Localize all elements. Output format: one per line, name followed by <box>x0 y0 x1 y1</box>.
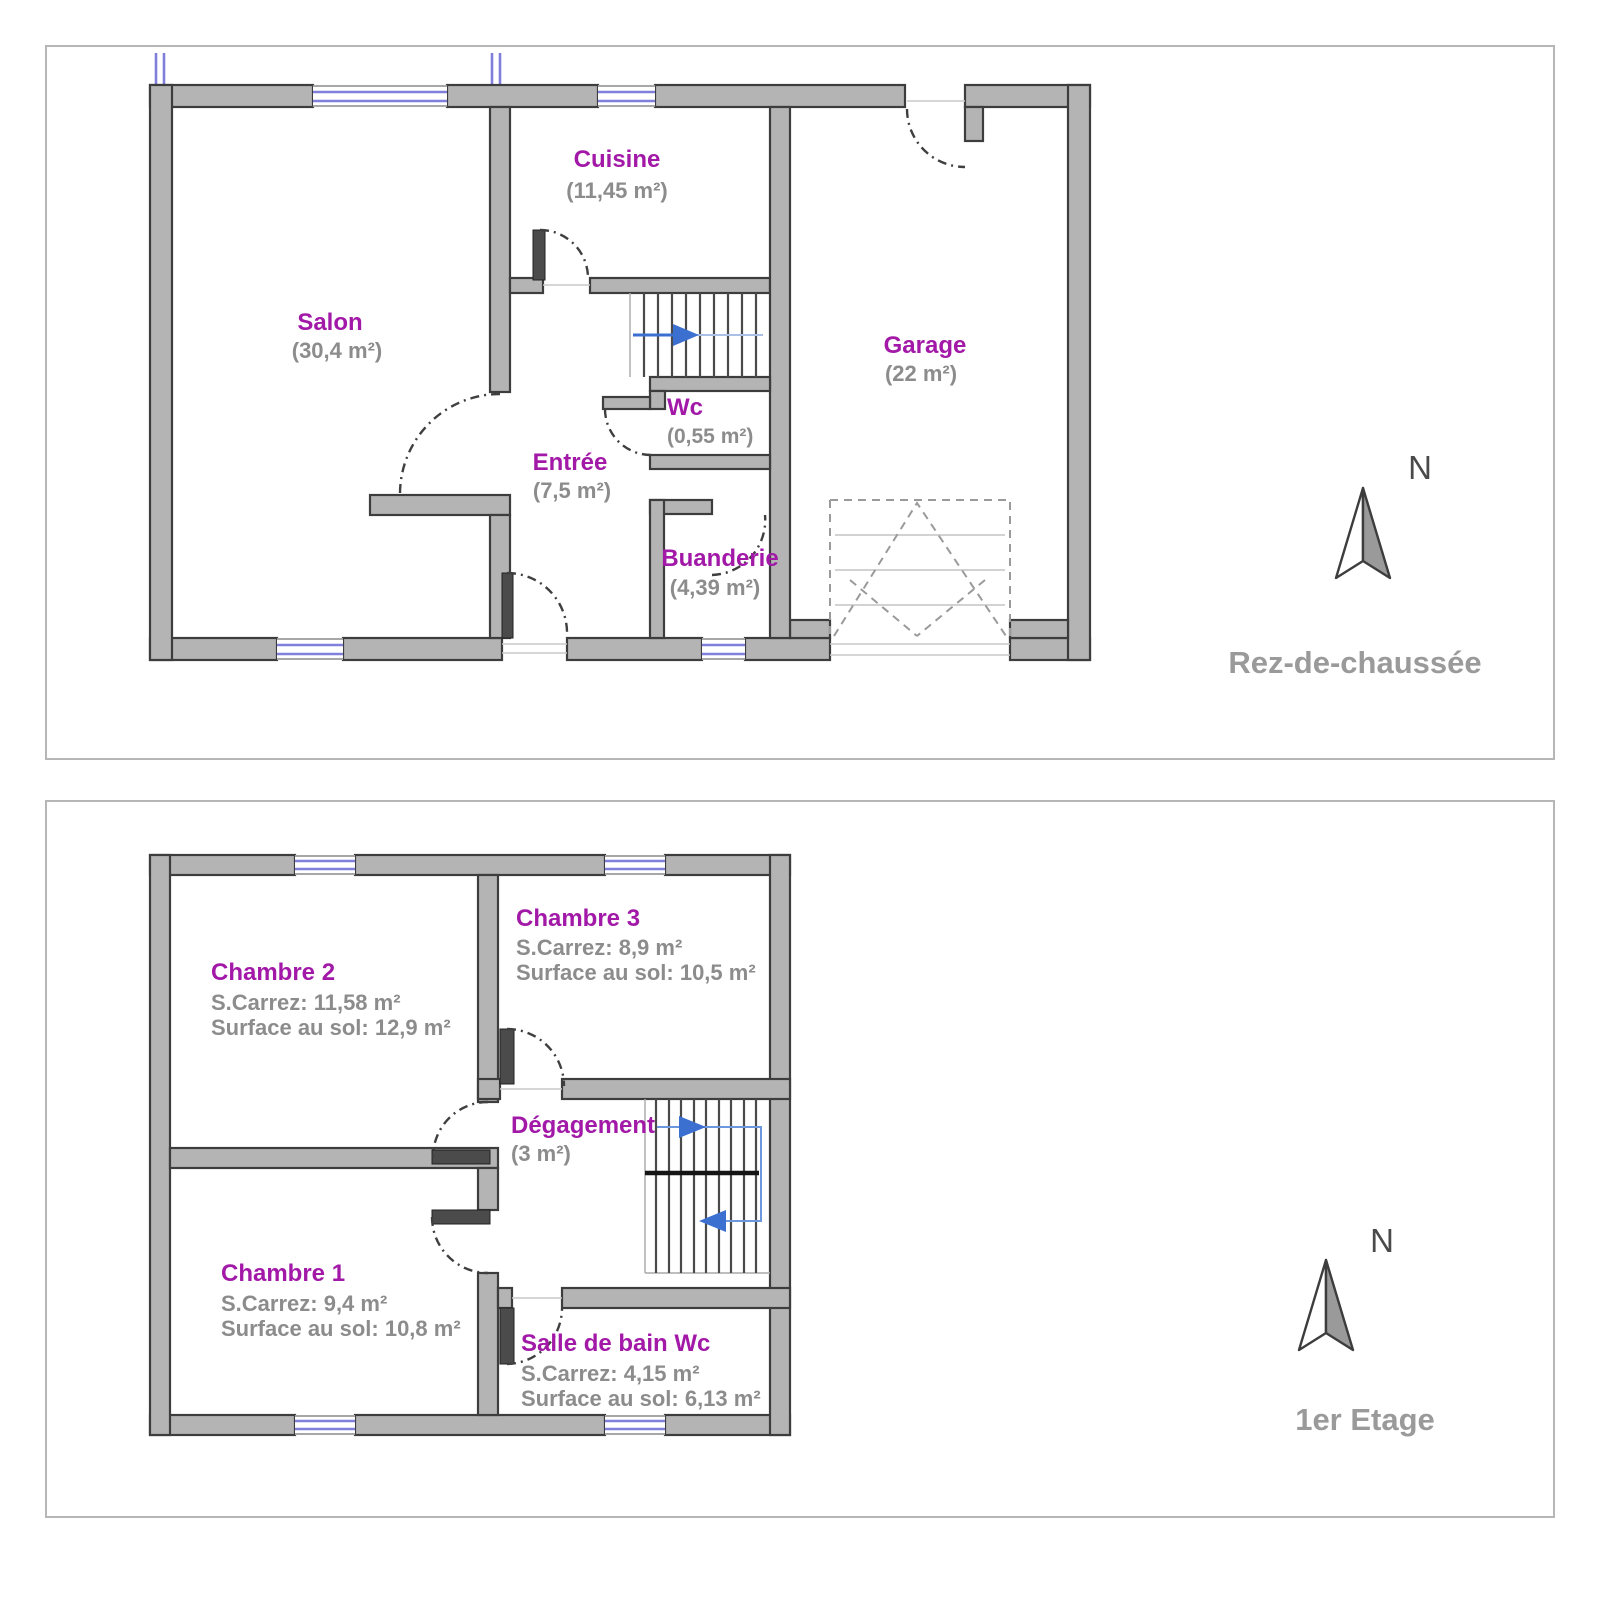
room-area-wc: (0,55 m²) <box>667 425 753 448</box>
window <box>605 855 665 875</box>
room-name-chambre2: Chambre 2 <box>211 959 335 986</box>
door-leaf <box>432 1210 490 1224</box>
room-name-sdb: Salle de bain Wc <box>521 1330 710 1357</box>
room-name-buanderie: Buanderie <box>661 545 778 572</box>
room-name-chambre1: Chambre 1 <box>221 1260 345 1287</box>
north-label: N <box>1408 449 1432 486</box>
room-sol-chambre3: Surface au sol: 10,5 m² <box>516 960 756 985</box>
room-name-garage: Garage <box>884 332 967 359</box>
room-carrez-chambre2: S.Carrez: 11,58 m² <box>211 990 401 1015</box>
window <box>295 855 355 875</box>
door-leaf <box>533 230 545 280</box>
room-name-wc: Wc <box>667 394 703 421</box>
room-name-salon: Salon <box>297 309 362 336</box>
ground-floor-plan: Cuisine (11,45 m²) Salon (30,4 m²) Garag… <box>45 45 1555 760</box>
window <box>598 85 655 107</box>
room-area-cuisine: (11,45 m²) <box>566 178 668 203</box>
window <box>702 638 745 660</box>
first-floor-plan: Chambre 2 S.Carrez: 11,58 m² Surface au … <box>45 800 1555 1518</box>
window <box>277 638 343 660</box>
room-area-degagement: (3 m²) <box>511 1141 571 1166</box>
north-label: N <box>1370 1222 1394 1259</box>
room-area-entree: (7,5 m²) <box>533 478 611 503</box>
door-leaf <box>502 573 513 638</box>
room-area-buanderie: (4,39 m²) <box>670 575 760 600</box>
room-area-salon: (30,4 m²) <box>292 338 382 363</box>
room-name-chambre3: Chambre 3 <box>516 905 640 932</box>
window <box>295 1415 355 1435</box>
floorplan-sheet: Cuisine (11,45 m²) Salon (30,4 m²) Garag… <box>0 0 1600 1600</box>
door-leaf <box>500 1308 514 1364</box>
room-sol-chambre2: Surface au sol: 12,9 m² <box>211 1015 451 1040</box>
room-sol-chambre1: Surface au sol: 10,8 m² <box>221 1316 461 1341</box>
room-area-garage: (22 m²) <box>885 361 957 386</box>
door-leaf <box>432 1150 490 1164</box>
door-leaf <box>500 1029 514 1084</box>
floor-caption: Rez-de-chaussée <box>1228 645 1481 680</box>
room-carrez-chambre1: S.Carrez: 9,4 m² <box>221 1291 387 1316</box>
room-carrez-chambre3: S.Carrez: 8,9 m² <box>516 935 682 960</box>
room-sol-sdb: Surface au sol: 6,13 m² <box>521 1386 761 1411</box>
room-name-cuisine: Cuisine <box>574 146 661 173</box>
window <box>313 85 447 107</box>
room-name-entree: Entrée <box>533 449 608 476</box>
floor-caption: 1er Etage <box>1295 1402 1435 1437</box>
room-name-degagement: Dégagement <box>511 1112 655 1139</box>
room-carrez-sdb: S.Carrez: 4,15 m² <box>521 1361 700 1386</box>
window <box>605 1415 665 1435</box>
